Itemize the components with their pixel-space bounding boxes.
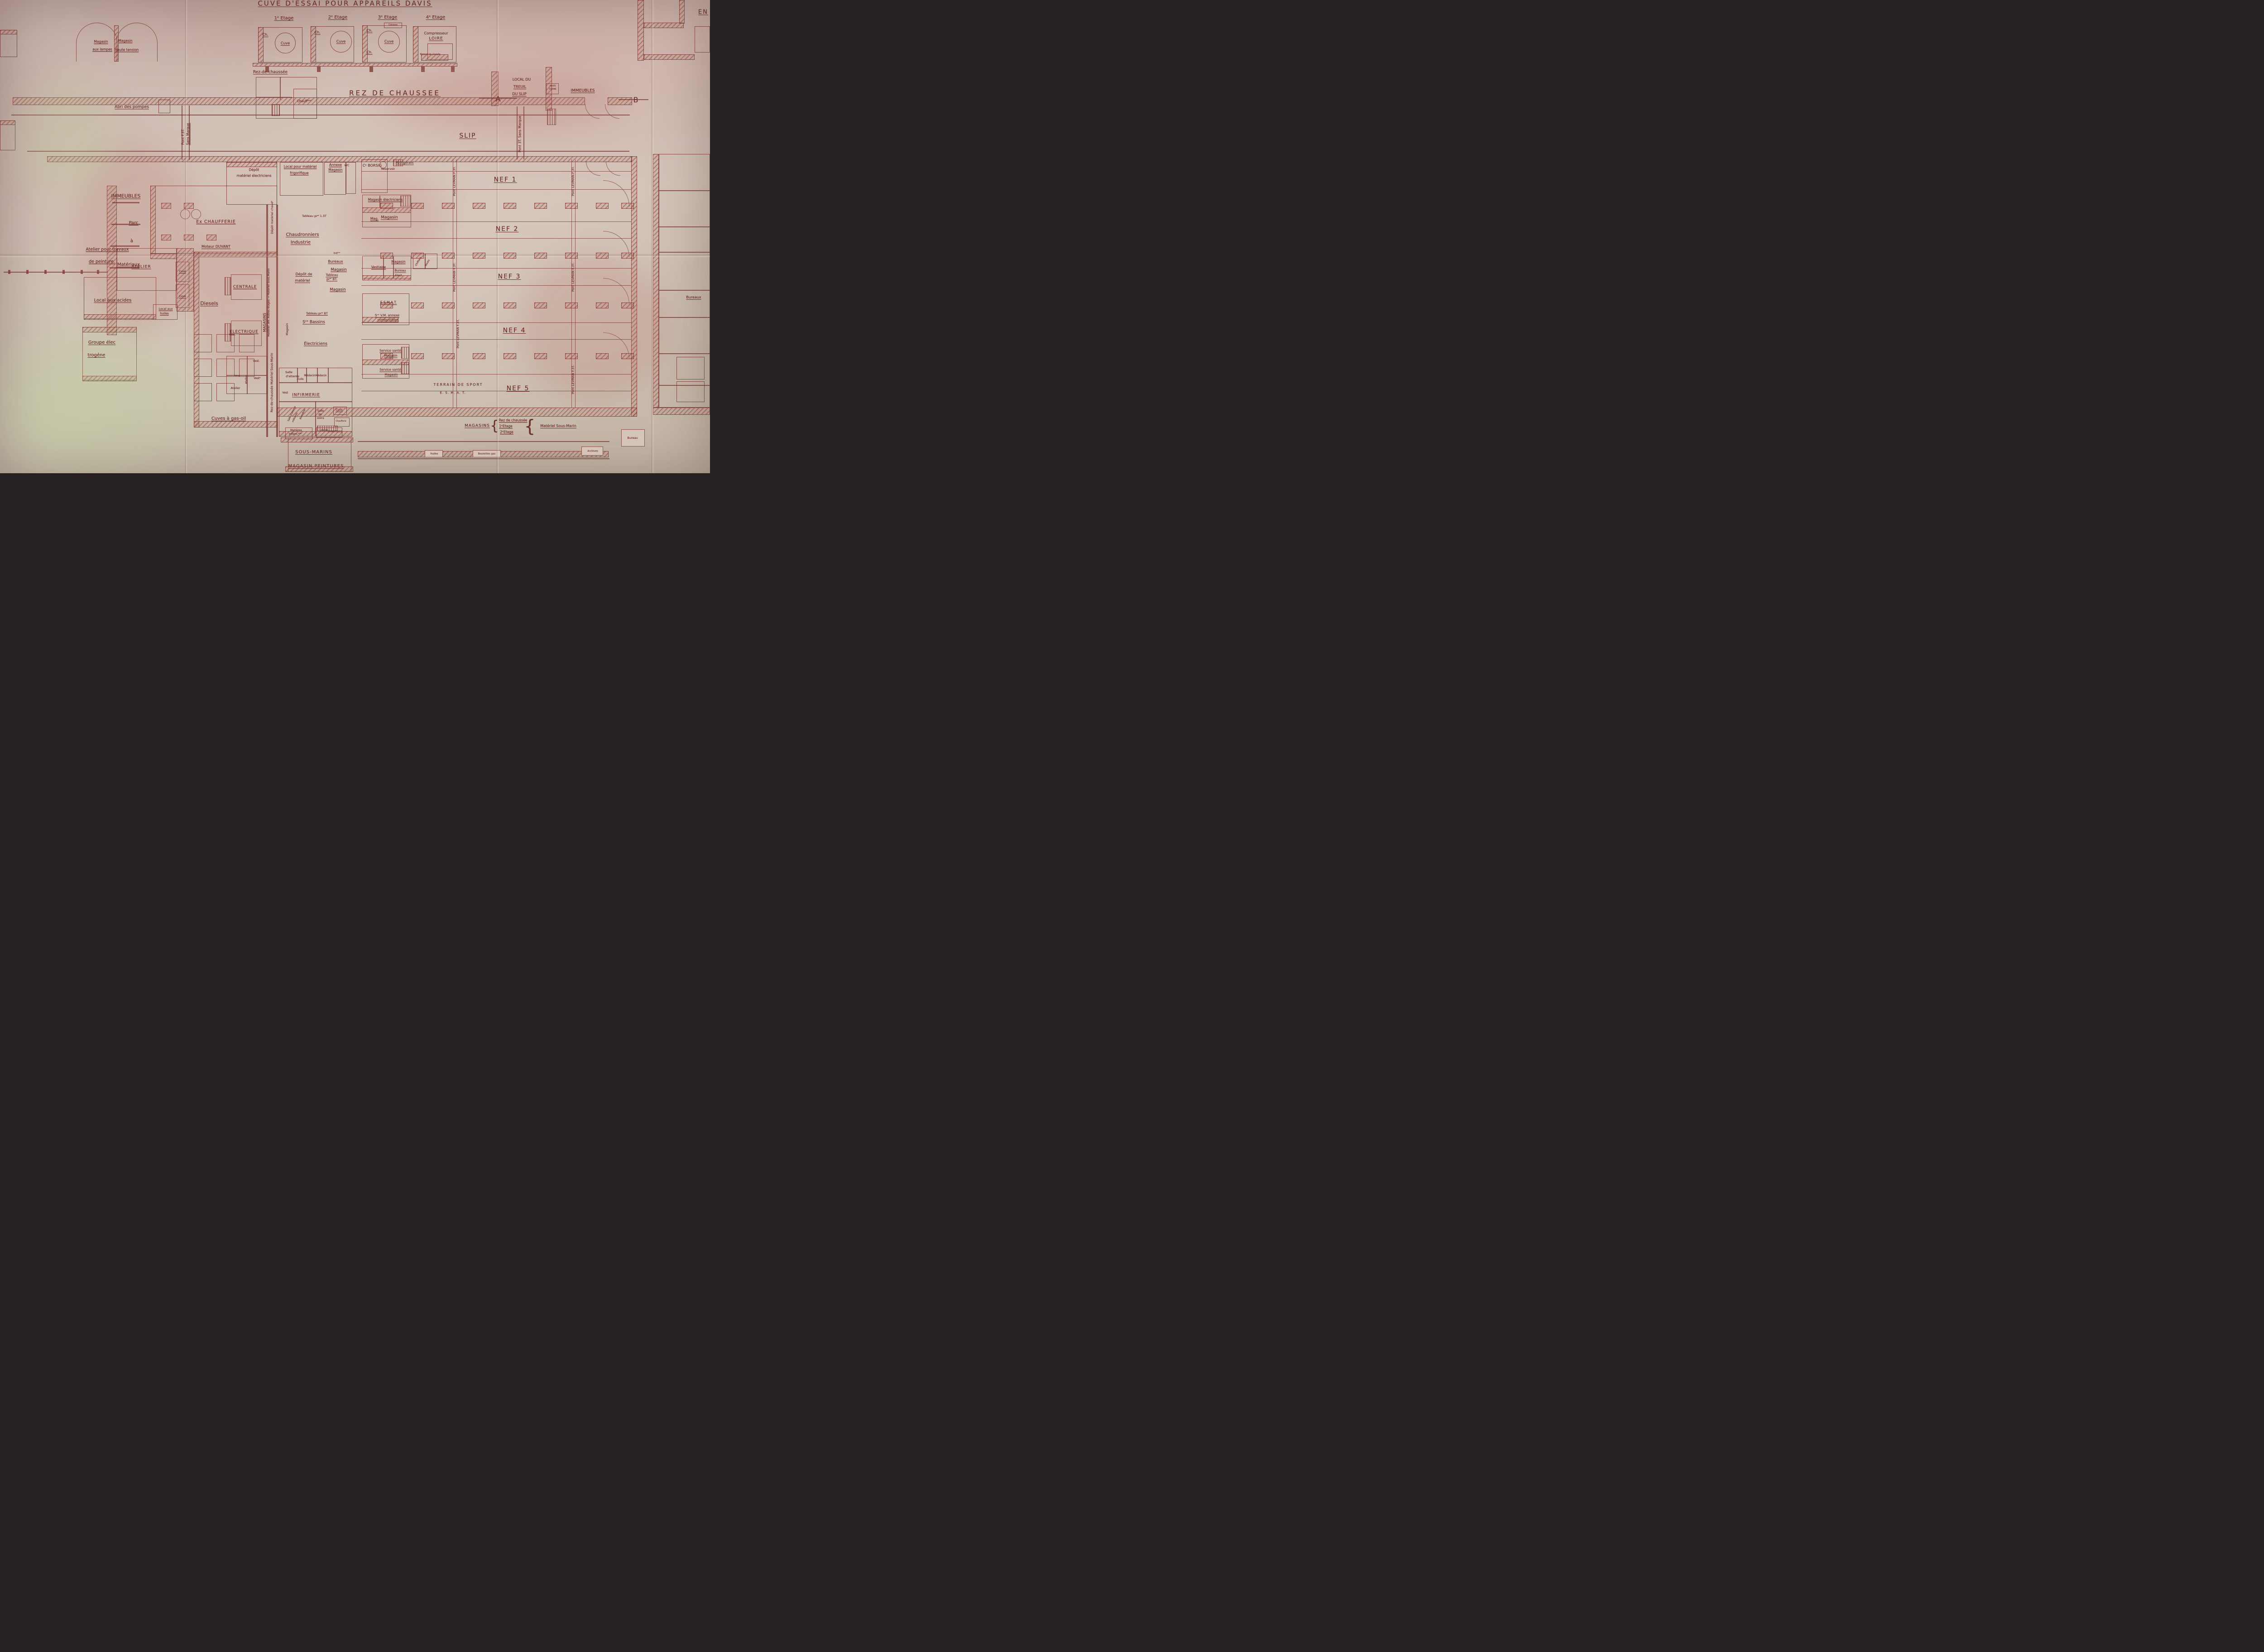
magasin-label: Magasin	[331, 268, 346, 272]
wall-line	[62, 270, 65, 274]
wall-line	[659, 290, 710, 291]
room-outline	[324, 162, 346, 195]
wall-hatch	[0, 120, 15, 125]
wall-line	[8, 270, 10, 274]
chaufferie-label: Chaufferie	[336, 421, 346, 423]
wall-line	[26, 270, 29, 274]
immeubles-label: IMMEUBLES	[571, 89, 595, 93]
s-bassins-label: Sᶜᵉ Bassins	[302, 321, 325, 325]
door-arc	[606, 161, 620, 176]
pont-levman-f-3t-label: Pont LEVMAN.F 3T.	[453, 166, 456, 196]
wall-hatch	[596, 203, 609, 209]
mati-res-label: Matières	[290, 429, 302, 432]
wall-line	[361, 391, 631, 391]
magasin-label: Magasin	[118, 39, 132, 43]
magasin-label: Magasin	[286, 323, 289, 335]
magasin-label: Magasin	[330, 288, 345, 292]
s-v-m-annexe-label: Sᶜᵉ V.M. annexe	[375, 314, 399, 317]
wall-line	[361, 374, 631, 375]
immeubles-label: IMMEUBLES	[111, 194, 141, 199]
mat-riel-sous-marin-label: Matériel Sous-Marin	[540, 424, 576, 428]
paper-fold-crease	[651, 0, 654, 473]
moteur-duvant-label: Moteur DUVANT	[201, 245, 230, 249]
archives-label: Archives	[587, 450, 598, 453]
abri-des-pompes-label: Abri des pompes	[115, 106, 149, 110]
local-label: LOCAL	[320, 429, 329, 432]
brace-label: {	[524, 418, 535, 435]
frigorifique-label: frigorifique	[290, 171, 308, 175]
slip-label: SLIP	[459, 133, 476, 139]
bureau-label: Bureau	[395, 269, 406, 273]
rez-de-chauss-e-label: Rez-de-chaussée	[253, 71, 288, 75]
paper-stain	[385, 68, 620, 131]
ch-label: Ch.	[262, 33, 268, 37]
wall-line	[44, 270, 47, 274]
infirmerie-label: INFIRMERIE	[292, 394, 320, 398]
wall-line	[358, 441, 609, 442]
wall-line	[317, 67, 321, 72]
wall-line	[659, 226, 710, 227]
local-pour-mat-riel-label: Local pour matériel	[284, 165, 317, 168]
combustibles-label: combustibles	[378, 319, 399, 322]
brace-label: {	[490, 419, 499, 433]
wall-hatch	[565, 203, 578, 209]
wall-line	[456, 159, 457, 408]
treuil-label: TREUIL	[513, 85, 526, 89]
2-etage-label: 2ᵉ Etage	[328, 15, 348, 20]
bureau-label: Bureau	[627, 437, 638, 440]
tableau-pr-bt-label: Tableau prᵃˡ BT	[306, 312, 328, 315]
wall-line	[361, 189, 631, 190]
cuve-d-essai-pour-appareils-davi-label: CUVE D'ESSAI POUR APPAREILS DAVIS	[258, 0, 432, 7]
magasin-label: Magasin	[94, 40, 108, 43]
mat-riel-de-plong-e-label: Matériel de plongée	[420, 54, 441, 56]
wall-line	[421, 67, 425, 72]
wall-hatch	[253, 63, 457, 67]
rez-de-chauss-e-mat-riel-sous-ma-label: Rez-de-chaussée Matériel Sous-Marin	[271, 353, 274, 412]
bouteilles-gaz-label: Bouteilles gaz	[478, 453, 496, 456]
groupe-lec-label: Groupe élec	[88, 341, 115, 345]
paper-stain	[190, 208, 299, 380]
terrain-de-sport-label: TERRAIN DE SPORT	[434, 383, 483, 387]
wall-hatch	[534, 253, 547, 259]
caissons-label: Caissons	[389, 24, 398, 27]
ch-label: Ch.	[314, 31, 320, 34]
centrale-label: CENTRALE	[233, 285, 257, 289]
vest-label: Vest	[283, 392, 288, 394]
wall-line	[361, 171, 631, 172]
wall-hatch	[653, 408, 710, 415]
wall-hatch	[504, 303, 516, 308]
room-outline	[194, 359, 212, 377]
cuve-label: Cuve	[179, 270, 186, 273]
wall-hatch	[411, 203, 424, 209]
wall-hatch	[442, 353, 455, 359]
vest-label: Vest.	[229, 334, 236, 336]
haute-tension-label: Haute tension	[115, 48, 139, 52]
door-arc	[586, 161, 600, 176]
local-aux-label: Local aux	[159, 307, 173, 311]
aux-lampes-label: aux lampes	[92, 48, 112, 51]
cuves-gas-oil-label: Cuves à gas-oil	[211, 417, 246, 421]
wall-hatch	[194, 421, 277, 427]
atelier-label: ATELIER	[131, 265, 151, 269]
wall-hatch	[596, 253, 609, 259]
cuve-label: Cuve	[336, 40, 345, 43]
magasin-label: Magasin	[384, 374, 398, 377]
rez-de-chaussee-label: REZ DE CHAUSSEE	[349, 90, 441, 97]
ch-label: Ch.	[366, 51, 372, 54]
wall-hatch	[473, 303, 485, 308]
magasin-label: Magasin	[328, 168, 342, 172]
wall-line	[369, 67, 373, 72]
chaufferie-label: CHAUFFERIE	[328, 431, 342, 433]
wall-line	[361, 322, 631, 323]
magasin-peintures-label: MAGASIN PEINTURES	[288, 464, 344, 469]
annexe-label: Annexe	[329, 163, 342, 167]
huiles-label: Huiles	[431, 453, 438, 456]
plate-label: PLATE	[550, 86, 556, 88]
wall-hatch	[411, 303, 424, 308]
rez-de-chauss-e-label: Rez de chaussée	[499, 418, 528, 422]
wall-line	[659, 385, 710, 386]
pont-f-3t-label: Pont F.3T.	[181, 129, 185, 144]
b-label: B	[633, 96, 638, 104]
magasin-lectriciens-label: Magasin électriciens	[368, 198, 403, 202]
e-s-m-a-t-label: E. S. M. A. T.	[440, 392, 465, 395]
paper-stain	[18, 82, 118, 199]
room-outline	[676, 381, 705, 402]
bureaux-label: Bureaux	[686, 296, 701, 299]
wall-line	[328, 368, 329, 382]
wall-hatch	[638, 0, 644, 61]
service-sant-label: Service santé	[379, 369, 401, 372]
wall-hatch	[565, 303, 578, 308]
huiles-label: huiles	[160, 312, 168, 315]
magasin-label: Magasin	[381, 216, 398, 220]
mat-riel-lectriciens-label: matériel électriciens	[237, 174, 272, 178]
pont-levman-f-3t-label: Pont LEVMAN F.3T.	[572, 365, 575, 394]
soins-label: soins	[317, 417, 324, 420]
wall-hatch	[534, 353, 547, 359]
wall-hatch	[621, 253, 634, 259]
ch-label: Ch.	[366, 29, 372, 33]
wall-hatch	[442, 203, 455, 209]
forme-label: FORME	[549, 89, 556, 91]
vest-label: Vest	[235, 375, 240, 378]
magasin-label: Magasin	[391, 260, 405, 264]
wall-line	[575, 159, 576, 408]
wall-line	[659, 190, 710, 191]
room-outline	[695, 26, 710, 53]
wall-hatch	[380, 203, 393, 209]
wall-hatch	[534, 203, 547, 209]
room-outline	[158, 100, 170, 113]
atelier-pour-travaux-label: Atelier pour travaux	[86, 247, 129, 252]
magasins-label: MAGASINS	[263, 313, 267, 332]
2-etage-label: 2ᵉEtage	[500, 430, 513, 434]
local-aux-acides-label: Local aux acides	[94, 298, 132, 303]
wall-hatch	[0, 30, 17, 34]
parc-label: Parc	[129, 221, 138, 226]
wall-hatch	[442, 303, 455, 308]
industrie-label: Industrie	[291, 240, 311, 245]
nef-2-label: NEF 2	[496, 226, 519, 232]
bureaux-label: Bureaux	[328, 260, 343, 264]
r-frig-rant-label: Réfrigérant	[396, 162, 413, 165]
brace-label: à	[130, 239, 133, 244]
pont-levman-f-3t-label: Pont LEVMAN F.3T.	[453, 263, 456, 292]
en-label: EN	[698, 10, 708, 15]
wall-hatch	[621, 353, 634, 359]
salle-label: Salle	[317, 410, 324, 413]
vest-label: Vestᵉ	[254, 377, 260, 380]
c-borsig-label: Cᵉ BORSIG	[363, 164, 382, 168]
cuve-label: Cuve	[281, 42, 290, 45]
mat-riel-an-autres-tages-mat-rie-label: Matériel .AN. Autres étages → Matériel S…	[268, 269, 270, 337]
wall-hatch	[473, 353, 485, 359]
magasin-label: Magasin	[384, 355, 397, 358]
atelier-label: Atelier	[230, 387, 240, 390]
wall-hatch	[442, 253, 455, 259]
paper-stain	[521, 254, 666, 399]
vestiaire-label: Vestiaire	[371, 265, 386, 269]
wall-line	[361, 339, 631, 340]
wall-hatch	[504, 203, 516, 209]
wall-line	[361, 221, 631, 222]
wall-hatch	[473, 253, 485, 259]
salle-label: Salle	[285, 371, 293, 374]
pont-levman-f-3t-label: Pont LEVMAN.F 3T.	[572, 166, 575, 196]
e-s-m-a-t-label: E.S.M.A.T.	[380, 301, 397, 304]
4-etage-label: 4ᵉ Etage	[426, 15, 446, 20]
nef-3-label: NEF 3	[498, 274, 521, 280]
wall-line	[358, 458, 609, 459]
service-sant-label: Service santé	[379, 350, 401, 353]
local-du-label: LOCAL DU	[513, 78, 531, 82]
wall-hatch	[281, 437, 353, 442]
mag-label: Mag.	[370, 217, 379, 221]
1-etage-label: 1ᵉ Etage	[274, 16, 294, 21]
nef-5-label: NEF 5	[507, 385, 530, 392]
sans-marque-label: Sans Marque	[186, 123, 190, 145]
nef-4-label: NEF 4	[503, 327, 526, 334]
cuve-label: Cuve	[384, 40, 393, 43]
elect-label: Elect.	[395, 274, 403, 277]
r-servoir-label: Réservoir	[381, 168, 395, 171]
blueprint-photo-stage: CUVE D'ESSAI POUR APPAREILS DAVIS1ᵉ Etag…	[0, 0, 710, 473]
wall-hatch	[596, 353, 609, 359]
ex-chaufferie-label: Ex CHAUFFERIE	[196, 220, 235, 224]
wall-hatch	[114, 25, 119, 62]
lectriciens-label: Électriciens	[304, 342, 327, 346]
vest-label: Vest.	[253, 360, 260, 363]
de-label: de	[318, 413, 322, 416]
wall-hatch	[565, 353, 578, 359]
wall-line	[361, 238, 631, 239]
compresseur-label: Compresseur	[424, 32, 448, 35]
sous-marins-label: SOUS-MARINS	[295, 450, 332, 455]
1-etage-label: 1ᵉEtage	[499, 424, 513, 428]
room-outline	[676, 357, 705, 379]
nef-1-label: NEF 1	[494, 177, 517, 183]
chaudronniers-label: Chaudronniers	[286, 233, 319, 237]
pr-bt-label: prᵃˡ BT.	[326, 278, 337, 281]
de-peinture-label: de peinture.	[89, 259, 115, 264]
diesels-label: Diesels	[200, 301, 218, 306]
wc-label: WC	[345, 164, 350, 167]
atelier-label: Atelier	[245, 375, 248, 384]
wall-line	[361, 285, 631, 286]
wall-hatch	[413, 26, 418, 62]
wall-hatch	[473, 203, 485, 209]
pont-3t-sans-marque-label: Pont 3T. Sans Marque	[518, 116, 522, 153]
3-etage-label: 3ᵉ Etage	[378, 15, 398, 20]
wall-hatch	[504, 353, 516, 359]
du-slip-label: DU SLIP	[512, 92, 526, 96]
wall-hatch	[226, 162, 277, 167]
d-p-t-label: Dépôt	[249, 168, 259, 172]
tableau-pr-1-3t-label: Tableau prᵃˡ 1.3T	[302, 215, 326, 218]
wall-hatch	[504, 253, 516, 259]
d-p-t-de-label: Dépôt de	[296, 273, 312, 276]
trog-ne-label: trogéne	[88, 353, 106, 358]
magasins-label: MAGASINS	[465, 424, 490, 428]
d-p-t-mat-riel-chaud-label: Dépôt matériel chaudˢ	[271, 201, 274, 234]
stairs-icon	[401, 362, 409, 374]
m-decin-label: Médecin	[315, 375, 326, 377]
wall-line	[279, 382, 352, 383]
wall-line	[659, 353, 710, 354]
wall-line	[659, 252, 710, 253]
loire-label: LOIRE	[429, 37, 443, 41]
inflam-label: inflam.ᵇˡᵉˢ	[289, 433, 302, 436]
civils-label: civils	[297, 378, 304, 381]
a-label: A	[496, 96, 501, 103]
wall-line	[659, 317, 710, 318]
wall-hatch	[362, 275, 411, 280]
wall-hatch	[565, 253, 578, 259]
pont-levman-f-3t-label: Pont LEVMAN F.3T.	[572, 263, 575, 292]
room-outline	[194, 383, 212, 401]
wall-hatch	[411, 353, 424, 359]
stairs-icon	[401, 347, 409, 359]
wall-hatch	[534, 303, 547, 308]
cuve-label: Cuve	[179, 295, 186, 298]
tableau-label: Tableau	[326, 274, 338, 277]
cuve-label: Cuve	[336, 409, 342, 412]
chauff-label: Chauffᵉʳⁱᵉ	[297, 100, 312, 103]
wall-hatch	[621, 203, 634, 209]
mat-riel-label: matériel	[295, 279, 310, 283]
wall-hatch	[596, 303, 609, 308]
wall-hatch	[644, 23, 684, 28]
wall-line	[280, 77, 281, 100]
m-decin-label: Médecin	[304, 375, 315, 377]
pont-levman-f-3t-label: Pont LEVMAN F.3T.	[457, 319, 460, 348]
ind-label: Indᵗʳⁱᵉ	[334, 252, 341, 255]
wall-hatch	[380, 253, 393, 259]
wall-hatch	[679, 0, 685, 24]
wall-hatch	[621, 303, 634, 308]
